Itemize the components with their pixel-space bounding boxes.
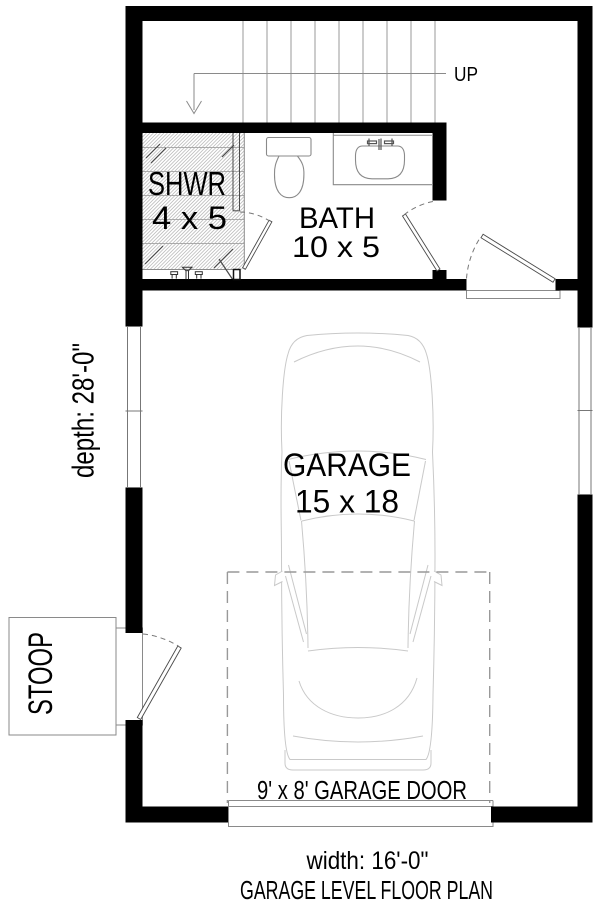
svg-text:width: 16'-0": width: 16'-0"	[306, 847, 429, 875]
svg-text:9' x 8' GARAGE DOOR: 9' x 8' GARAGE DOOR	[257, 777, 467, 805]
svg-text:10 x 5: 10 x 5	[292, 231, 380, 264]
svg-text:depth: 28'-0": depth: 28'-0"	[66, 343, 101, 478]
svg-text:STOOP: STOOP	[22, 632, 60, 715]
svg-text:15 x 18: 15 x 18	[295, 484, 399, 520]
svg-text:SHWR: SHWR	[148, 165, 226, 202]
svg-text:GARAGE LEVEL FLOOR PLAN: GARAGE LEVEL FLOOR PLAN	[240, 875, 493, 904]
svg-text:GARAGE: GARAGE	[283, 447, 411, 483]
svg-text:4 x 5: 4 x 5	[152, 200, 227, 236]
svg-text:UP: UP	[454, 64, 478, 86]
